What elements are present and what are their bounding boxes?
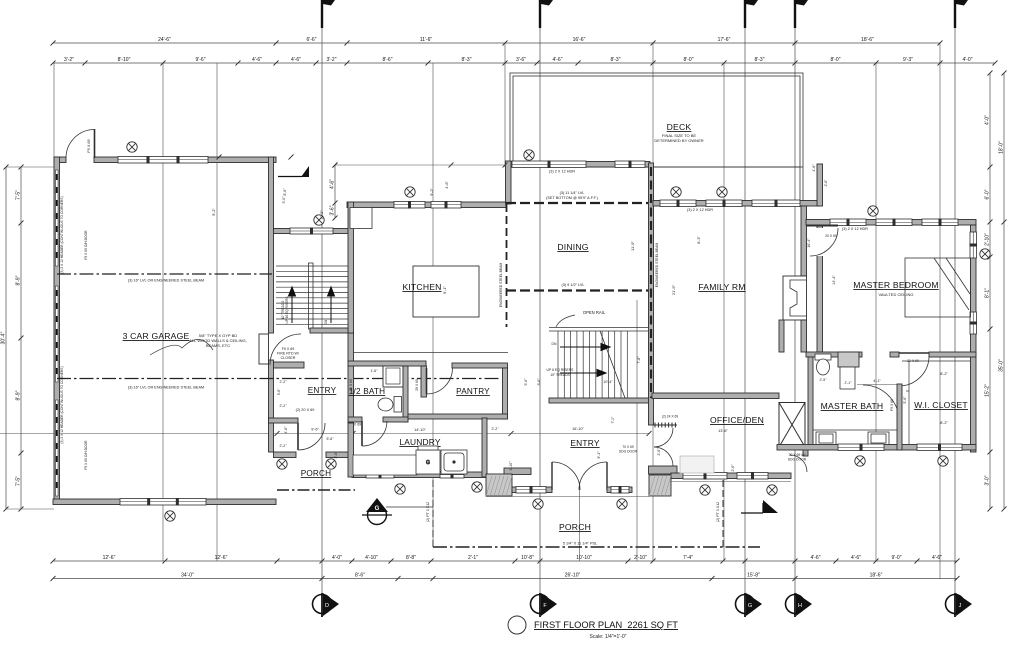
- svg-text:(SET BOTTOM @ 95'9" A.F.F.): (SET BOTTOM @ 95'9" A.F.F.): [546, 196, 599, 200]
- svg-text:3'-0": 3'-0": [282, 196, 286, 204]
- svg-text:(3) 2 X 12 HDR: (3) 2 X 12 HDR: [549, 170, 575, 174]
- svg-text:8'-9": 8'-9": [16, 275, 22, 285]
- svg-text:UP 16 EQ RISERS: UP 16 EQ RISERS: [285, 296, 289, 323]
- svg-text:21'-9": 21'-9": [671, 284, 676, 295]
- svg-text:8'-3": 8'-3": [611, 57, 621, 63]
- svg-text:D: D: [325, 603, 329, 609]
- svg-text:9'-0": 9'-0": [892, 555, 902, 561]
- svg-text:30 X 69 W/: 30 X 69 W/: [789, 453, 806, 457]
- svg-text:8'-3": 8'-3": [697, 236, 701, 244]
- svg-text:DINING: DINING: [557, 242, 588, 252]
- svg-text:6'-6": 6'-6": [307, 37, 317, 43]
- svg-text:8'-0": 8'-0": [831, 57, 841, 63]
- svg-text:9'-1": 9'-1": [597, 451, 601, 459]
- svg-text:LAUNDRY: LAUNDRY: [399, 437, 440, 447]
- svg-text:(3) 11 1/4" LVL: (3) 11 1/4" LVL: [560, 191, 585, 195]
- svg-text:5 1/4" X 11 1/4" PSL: 5 1/4" X 11 1/4" PSL: [563, 542, 597, 546]
- svg-text:7'-5": 7'-5": [16, 190, 22, 200]
- svg-text:4'-6": 4'-6": [291, 57, 301, 63]
- svg-text:4'-0": 4'-0": [985, 115, 991, 125]
- svg-text:2'-5": 2'-5": [820, 378, 828, 382]
- svg-text:7'-8": 7'-8": [637, 356, 641, 364]
- svg-text:8'-2": 8'-2": [940, 372, 948, 376]
- svg-text:18'-6": 18'-6": [870, 573, 883, 579]
- svg-text:2'-10": 2'-10": [985, 233, 991, 246]
- svg-text:(3) 9 1/2" LVL: (3) 9 1/2" LVL: [561, 283, 584, 287]
- svg-text:SDG DOOR: SDG DOOR: [788, 458, 807, 462]
- svg-text:FIRST FLOOR PLAN 2261 SQ FT: FIRST FLOOR PLAN 2261 SQ FT: [534, 620, 678, 630]
- svg-text:16'-10": 16'-10": [572, 427, 584, 431]
- svg-text:F9 X 69: F9 X 69: [282, 347, 295, 351]
- svg-text:F9 X 69: F9 X 69: [87, 139, 91, 152]
- svg-text:4'-1": 4'-1": [873, 379, 881, 383]
- svg-text:3'-0": 3'-0": [985, 475, 991, 485]
- svg-text:(2) 24 X 69: (2) 24 X 69: [662, 415, 678, 419]
- svg-text:G: G: [375, 506, 380, 512]
- svg-text:6'-0": 6'-0": [985, 189, 991, 199]
- svg-text:7'-0": 7'-0": [611, 416, 615, 424]
- svg-text:10" TREADS: 10" TREADS: [550, 373, 570, 377]
- svg-text:4'-6": 4'-6": [812, 164, 816, 172]
- svg-text:DN: DN: [552, 342, 557, 346]
- svg-text:2'-10": 2'-10": [509, 461, 513, 471]
- svg-text:8'-2": 8'-2": [940, 421, 948, 425]
- svg-text:15'-8": 15'-8": [747, 573, 760, 579]
- svg-text:9'-6": 9'-6": [196, 57, 206, 63]
- svg-text:26'-10": 26'-10": [565, 573, 581, 579]
- svg-text:7'-4": 7'-4": [683, 555, 693, 561]
- svg-text:34'-0": 34'-0": [181, 573, 194, 579]
- svg-text:9'-6": 9'-6": [311, 428, 319, 432]
- svg-text:DN: DN: [324, 319, 328, 324]
- svg-text:2'-6": 2'-6": [824, 179, 828, 187]
- svg-text:VAULTED CEILING: VAULTED CEILING: [879, 292, 914, 297]
- svg-text:14'-4": 14'-4": [832, 275, 836, 285]
- svg-text:(3) 2 X 12 HDR: (3) 2 X 12 HDR: [687, 208, 713, 212]
- svg-text:4'-6": 4'-6": [811, 555, 821, 561]
- svg-text:4'-6": 4'-6": [553, 57, 563, 63]
- svg-text:PORCH: PORCH: [559, 522, 591, 532]
- svg-text:16'-4": 16'-4": [807, 238, 811, 248]
- svg-text:24'-6": 24'-6": [158, 37, 171, 43]
- svg-text:4'-10": 4'-10": [365, 555, 378, 561]
- svg-text:9'-1": 9'-1": [442, 285, 447, 294]
- svg-text:5'-6": 5'-6": [277, 388, 281, 395]
- svg-text:2'-2": 2'-2": [280, 404, 288, 408]
- svg-text:H: H: [798, 603, 802, 609]
- svg-text:2'-6": 2'-6": [657, 448, 661, 456]
- svg-text:8'-0": 8'-0": [684, 57, 694, 63]
- svg-text:4'-6": 4'-6": [932, 555, 942, 561]
- svg-text:2'-2": 2'-2": [280, 444, 288, 448]
- svg-text:17'-6": 17'-6": [718, 37, 731, 43]
- svg-text:3'-2": 3'-2": [64, 57, 74, 63]
- svg-text:8'-3": 8'-3": [755, 57, 765, 63]
- svg-text:1'-6": 1'-6": [371, 369, 379, 373]
- svg-text:(3) 2 X 12 HEADER (CONTINUOUS: (3) 2 X 12 HEADER (CONTINUOUS TO CORNERS…: [60, 196, 64, 273]
- svg-text:ENTRY: ENTRY: [570, 438, 599, 448]
- svg-text:DECK: DECK: [667, 122, 692, 132]
- svg-text:FIRE RTD W/: FIRE RTD W/: [277, 352, 299, 356]
- svg-text:4'-6": 4'-6": [851, 555, 861, 561]
- svg-text:CLOSER: CLOSER: [281, 356, 296, 360]
- svg-text:(3) 2 X 12 HDR: (3) 2 X 12 HDR: [842, 227, 868, 231]
- svg-text:2'-2": 2'-2": [280, 380, 288, 384]
- svg-text:18'-0": 18'-0": [999, 141, 1005, 154]
- svg-text:9'-2": 9'-2": [430, 188, 434, 196]
- svg-text:1/2 BATH: 1/2 BATH: [349, 387, 385, 396]
- svg-text:4'-0": 4'-0": [963, 57, 973, 63]
- svg-text:MASTER BEDROOM: MASTER BEDROOM: [853, 280, 938, 290]
- svg-text:DETERMINED BY OWNER: DETERMINED BY OWNER: [654, 138, 703, 143]
- svg-text:2'-10": 2'-10": [634, 555, 647, 561]
- svg-text:2'-6": 2'-6": [731, 464, 735, 472]
- svg-text:30'-4": 30'-4": [1, 331, 7, 344]
- svg-text:10'-8": 10'-8": [521, 555, 534, 561]
- svg-text:8'-6": 8'-6": [355, 573, 365, 579]
- svg-text:10'-4": 10'-4": [603, 380, 613, 384]
- svg-text:4'-6": 4'-6": [445, 181, 449, 189]
- svg-text:ENTRY: ENTRY: [308, 386, 337, 395]
- svg-text:13'-6": 13'-6": [718, 429, 728, 433]
- svg-text:3'-2": 3'-2": [327, 57, 337, 63]
- svg-text:2'-2": 2'-2": [492, 427, 500, 431]
- svg-text:8'-10": 8'-10": [118, 57, 131, 63]
- svg-text:12'-6": 12'-6": [103, 555, 116, 561]
- svg-text:7'-5": 7'-5": [16, 476, 22, 486]
- svg-text:5'-6": 5'-6": [524, 378, 528, 386]
- svg-text:11'-6": 11'-6": [420, 37, 433, 43]
- svg-text:F9 X 69: F9 X 69: [890, 399, 894, 411]
- svg-text:16'-6": 16'-6": [573, 37, 586, 43]
- svg-text:10" TREADS: 10" TREADS: [281, 301, 285, 319]
- svg-text:OFFICE/DEN: OFFICE/DEN: [710, 415, 764, 425]
- svg-text:70 X 69: 70 X 69: [622, 445, 634, 449]
- svg-text:5'-6": 5'-6": [903, 396, 907, 404]
- svg-text:UP 6 EQ RISERS: UP 6 EQ RISERS: [547, 368, 575, 372]
- svg-text:14'-10": 14'-10": [414, 428, 426, 432]
- svg-text:3'-6": 3'-6": [516, 57, 526, 63]
- svg-text:3'-6": 3'-6": [330, 205, 336, 215]
- svg-text:(3) 16" LVL OR ENGINEERED STEE: (3) 16" LVL OR ENGINEERED STEEL BEAM: [128, 386, 204, 390]
- svg-text:J: J: [959, 603, 962, 609]
- svg-text:G: G: [426, 460, 430, 466]
- svg-text:20 X 69: 20 X 69: [349, 379, 353, 391]
- svg-text:20 X 69: 20 X 69: [825, 234, 837, 238]
- svg-text:29 X 69: 29 X 69: [415, 379, 419, 391]
- svg-text:PORCH: PORCH: [301, 469, 332, 478]
- svg-text:8'-8": 8'-8": [406, 555, 416, 561]
- svg-text:8'-6": 8'-6": [283, 188, 287, 196]
- svg-text:8'-3": 8'-3": [462, 57, 472, 63]
- svg-text:2'-1": 2'-1": [845, 381, 853, 385]
- svg-text:3'-6": 3'-6": [537, 378, 541, 386]
- svg-text:ENGINEERED STEEL BEAM: ENGINEERED STEEL BEAM: [655, 243, 659, 288]
- svg-text:(2) PT 3 X12: (2) PT 3 X12: [716, 502, 720, 522]
- svg-text:PANTRY: PANTRY: [456, 387, 490, 396]
- svg-text:12'-6": 12'-6": [215, 555, 228, 561]
- svg-text:KITCHEN: KITCHEN: [402, 282, 441, 292]
- svg-text:9'-2": 9'-2": [212, 208, 216, 216]
- svg-text:Scale: 1/4"=1'-0": Scale: 1/4"=1'-0": [590, 634, 627, 640]
- svg-text:F9 X 69 O/H DOOR: F9 X 69 O/H DOOR: [84, 440, 88, 470]
- svg-text:SDG DOOR: SDG DOOR: [619, 450, 638, 454]
- svg-text:FAMILY RM: FAMILY RM: [698, 282, 745, 292]
- svg-text:15'-2": 15'-2": [985, 384, 991, 397]
- svg-text:4'-6": 4'-6": [330, 179, 336, 189]
- svg-text:2'-6": 2'-6": [334, 451, 338, 459]
- svg-text:18'-6": 18'-6": [861, 37, 874, 43]
- svg-text:(2) PT 3 X12: (2) PT 3 X12: [426, 502, 430, 522]
- svg-text:G: G: [748, 603, 752, 609]
- svg-text:3 CAR GARAGE: 3 CAR GARAGE: [123, 331, 190, 341]
- svg-text:35'-0": 35'-0": [999, 359, 1005, 372]
- svg-text:ENGINEERED STEEL BEAM: ENGINEERED STEEL BEAM: [499, 263, 503, 308]
- svg-text:8'-1": 8'-1": [985, 288, 991, 298]
- svg-text:(3) 16" LVL OR ENGINEERED STEE: (3) 16" LVL OR ENGINEERED STEEL BEAM: [128, 279, 204, 283]
- svg-text:F9 X 69 O/H DOOR: F9 X 69 O/H DOOR: [84, 230, 88, 260]
- svg-text:(2) 20 X 69: (2) 20 X 69: [296, 408, 315, 412]
- svg-text:11'-9": 11'-9": [630, 240, 635, 250]
- svg-text:9'-3": 9'-3": [903, 57, 913, 63]
- svg-text:5'-6": 5'-6": [327, 437, 335, 441]
- svg-text:10'-2": 10'-2": [320, 210, 324, 220]
- svg-text:4'-0": 4'-0": [332, 555, 342, 561]
- svg-text:10'-10": 10'-10": [576, 555, 592, 561]
- svg-text:8'-9": 8'-9": [16, 390, 22, 400]
- svg-text:MASTER BATH: MASTER BATH: [821, 401, 884, 411]
- svg-text:8'-6": 8'-6": [383, 57, 393, 63]
- svg-text:W.I. CLOSET: W.I. CLOSET: [914, 400, 968, 410]
- svg-text:4'-6": 4'-6": [284, 426, 288, 434]
- svg-text:4'-6": 4'-6": [252, 57, 262, 63]
- svg-text:OPEN RAIL: OPEN RAIL: [583, 310, 606, 315]
- svg-text:2'-1": 2'-1": [468, 555, 478, 561]
